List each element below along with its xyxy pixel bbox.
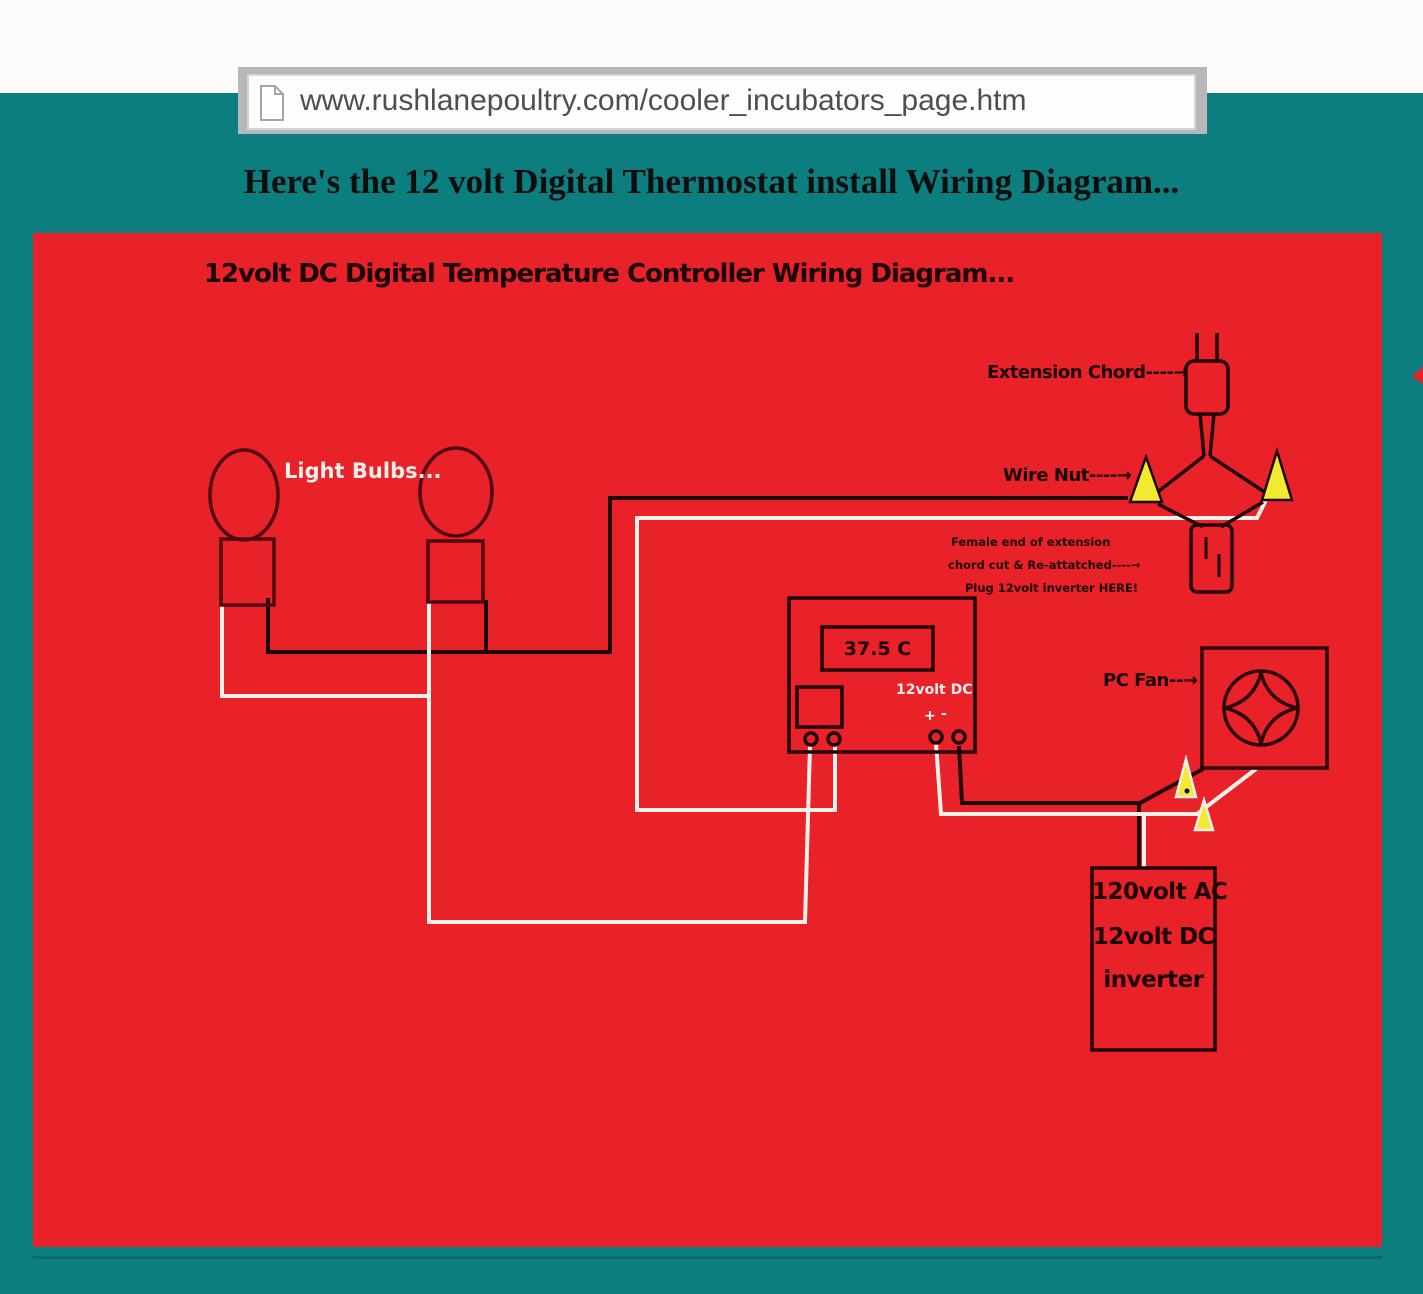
temperature-controller (789, 598, 975, 752)
browser-page: www.rushlanepoultry.com/cooler_incubator… (0, 0, 1423, 1294)
wire-nut-triangle-right (1262, 451, 1292, 500)
fan-ring (1224, 671, 1298, 745)
female-end-note-line1: Female end of extension (951, 535, 1110, 549)
female-end-note-line3: Plug 12volt inverter HERE! (965, 581, 1138, 595)
female-end-note-line2: chord cut & Re-attatched----→ (948, 558, 1141, 572)
fan-frame (1202, 648, 1327, 768)
plug-neck-left (1200, 414, 1204, 456)
wire-nut-label: Wire Nut----→ (1003, 465, 1131, 486)
bulb1-socket (221, 539, 274, 605)
terminal-minus-mark: - (941, 706, 947, 722)
terminal-plus-mark: + (924, 708, 936, 724)
wire-nut-triangle-left (1130, 457, 1162, 502)
fan-blades-icon (1225, 673, 1297, 743)
pc-fan (1202, 648, 1327, 768)
wire-nuts (1130, 451, 1292, 830)
controller-terminal-2 (828, 733, 840, 745)
controller-body (789, 598, 975, 752)
extension-chord-label: Extension Chord----→ (987, 362, 1188, 383)
controller-terminal-1 (805, 733, 817, 745)
plug-body (1186, 361, 1228, 414)
pc-fan-label: PC Fan--→ (1103, 670, 1197, 691)
controller-relay-block (797, 687, 842, 727)
inverter-label-line1: 120volt AC (1092, 879, 1215, 905)
controller-display-value: 37.5 C (822, 638, 933, 660)
inverter-label-line2: 12volt DC (1092, 924, 1215, 950)
plug-split-right (1210, 456, 1266, 493)
wire-nut-dot (1185, 789, 1190, 794)
inverter-label-line3: inverter (1092, 967, 1215, 993)
controller-terminal-4 (953, 731, 965, 743)
page-edge-red-mark (1412, 367, 1423, 384)
controller-voltage-label: 12volt DC (896, 682, 973, 698)
bulb2-socket (428, 541, 483, 602)
controller-negative-wire (959, 746, 1203, 803)
plug-neck-right (1210, 414, 1214, 456)
controller-terminal-3 (930, 731, 942, 743)
bulb-hot-wire (268, 498, 1128, 652)
diagram-title: 12volt DC Digital Temperature Controller… (33, 259, 1185, 289)
bulb1-globe (210, 450, 278, 540)
wiring-diagram-drawing (0, 0, 1423, 1294)
light-bulbs-label: Light Bulbs... (284, 459, 442, 483)
female-outlet (1191, 525, 1232, 592)
